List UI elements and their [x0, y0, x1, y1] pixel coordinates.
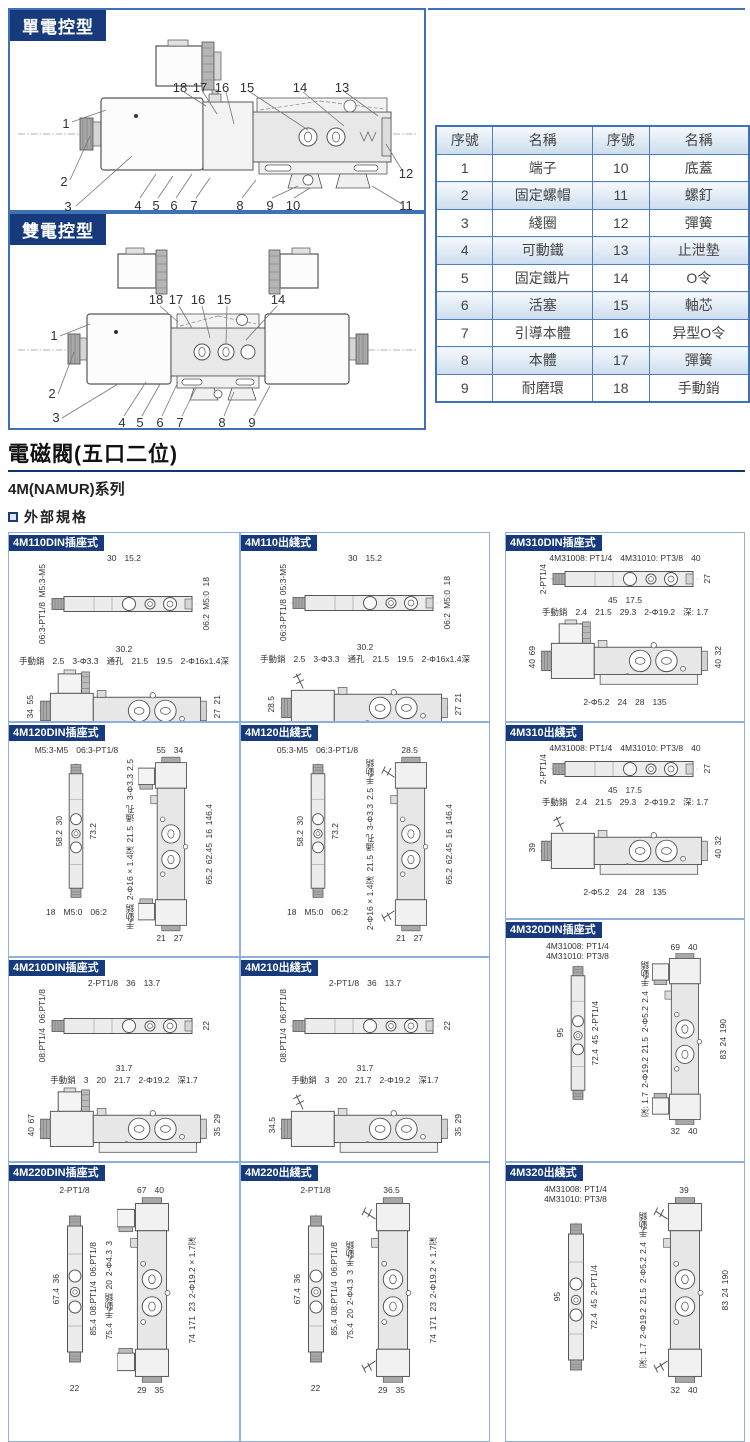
dim-label: 2-Φ16x1.4深 [181, 657, 229, 666]
callout-16: 16 [191, 292, 205, 307]
spec-panel-title: 4M110出綫式 [241, 535, 317, 551]
part-number-cell: 18 [592, 374, 649, 402]
valve-top-view-drawing [550, 568, 700, 590]
callout-18: 18 [173, 80, 187, 95]
dim-label: 135 [652, 888, 666, 897]
dim-label: 31.7 [116, 1064, 133, 1073]
dim-label: 手動銷 [542, 798, 568, 807]
spec-panel-title: 4M120出綫式 [241, 725, 318, 741]
spec-heading: 外部規格 [24, 507, 88, 527]
dim-label: 16 [445, 829, 454, 838]
dim-label: 22 [311, 1384, 320, 1393]
dimension-labels-above: 4M31008: PT1/44M31010: PT3/840 [549, 553, 700, 563]
dim-label: 2-PT1/8 [329, 979, 359, 988]
dim-label: 39 [528, 843, 537, 852]
callout-17: 17 [193, 80, 207, 95]
dim-label: 手動銷 [105, 1293, 114, 1319]
dim-label: 2.5 [126, 759, 135, 771]
dim-label: 65.2 [445, 868, 454, 885]
dim-label: 35 [155, 1386, 164, 1395]
dim-label: 手動銷 [639, 1212, 648, 1238]
dim-label: 13.7 [385, 979, 402, 988]
dim-label: 2-PT1/8 [88, 979, 118, 988]
callout-9: 9 [248, 415, 255, 428]
dimension-labels-right: 27 [703, 764, 712, 773]
callout-10: 10 [286, 198, 300, 212]
dim-label: 06:3-PT1/8 [76, 746, 118, 755]
dim-label: 67 [137, 1186, 146, 1195]
dim-label: 40 [528, 659, 537, 668]
dim-label: 67.4 [293, 1288, 302, 1305]
dim-label: 2-Φ16×1.4深 [126, 846, 135, 900]
dim-label: 4M31010: PT3/8 [620, 554, 683, 563]
dimension-labels-above: 6940 [671, 942, 698, 952]
dim-label: 35 [396, 1386, 405, 1395]
single-type-section: 單電控型 [8, 8, 426, 212]
part-name-cell: 可動鐵 [493, 237, 592, 265]
dim-label: 2.4 [575, 608, 587, 617]
callout-3: 3 [64, 199, 71, 212]
dim-label: 3 [325, 1076, 330, 1085]
page-title: 電磁閥(五口二位) [8, 438, 750, 468]
dim-label: 2-PT1/4 [539, 564, 548, 594]
dim-label: 2.4 [575, 798, 587, 807]
dim-label: 65.2 [205, 868, 214, 885]
dimension-labels-left: 06:PT1/808:PT1/4 [38, 989, 47, 1062]
dim-label: 21 [454, 693, 463, 702]
dim-label: 06:2 [90, 908, 107, 917]
dim-label: M5:0 [443, 590, 452, 609]
dimension-labels-left: 06:PT1/808:PT1/4 [279, 989, 288, 1062]
part-name-cell: 固定鐵片 [493, 264, 592, 292]
spec-heading-row: 外部規格 [8, 507, 750, 527]
dimension-labels-right: 18M5:006:2 [443, 576, 452, 629]
dim-label: 08:PT1/4 [279, 1028, 288, 1063]
cross-section-area: 單電控型 [0, 0, 750, 432]
part-name-cell: 耐磨環 [493, 374, 592, 402]
spec-panel-title: 4M310DIN插座式 [506, 535, 602, 551]
dim-label: 40 [714, 659, 723, 668]
part-number-cell: 8 [436, 347, 493, 375]
dimension-labels-below: 18M5:006:2 [287, 907, 348, 917]
dimension-labels-right: 2127 [454, 693, 463, 716]
dim-label: 深: 1.7 [683, 798, 708, 807]
dimension-labels-below: 3240 [671, 1385, 698, 1395]
part-number-cell: 9 [436, 374, 493, 402]
dim-label: 2-Φ16×1.4深 [366, 876, 375, 930]
dim-label: 17.5 [625, 786, 642, 795]
dim-label: 通孔 [348, 655, 365, 664]
dimension-labels-below: 22 [311, 1383, 320, 1393]
dim-label: 06:PT1/8 [279, 989, 288, 1024]
dim-label: 2-Φ16x1.4深 [422, 655, 470, 664]
spec-panel: 4M110出綫式 3015.2 05:3-M506:3-PT1/8 18M5:0… [240, 532, 490, 722]
dimension-labels-above: 5534 [156, 745, 183, 755]
dimension-labels-right: 27 [703, 574, 712, 583]
part-name-cell: 軸芯 [649, 292, 749, 320]
dim-label: 手動銷 [366, 759, 375, 785]
spec-panels-left-middle: 4M110DIN插座式 3015.2 M5:3-M506:3-PT1/8 18M… [8, 532, 490, 1442]
part-number-cell: 2 [436, 182, 493, 210]
dim-label: 06:PT1/8 [38, 989, 47, 1024]
dim-label: 35 [454, 1127, 463, 1136]
spec-panel: 4M120出綫式 05:3-M506:3-PT1/8 3058.2 73.2 1… [240, 722, 490, 957]
dim-label: M5:0 [202, 591, 211, 610]
valve-top-view-drawing [290, 592, 440, 614]
callout-4: 4 [118, 415, 125, 428]
part-number-cell: 5 [436, 264, 493, 292]
dim-label: 29 [378, 1386, 387, 1395]
dimension-labels-below: 18M5:006:2 [46, 907, 107, 917]
dim-label: 32 [671, 1386, 680, 1395]
dim-label: 深: 1.7 [683, 608, 708, 617]
dimension-labels-below: 2127 [156, 933, 183, 943]
dim-label: 2-PT1/4 [591, 1001, 600, 1031]
dimension-labels-right: 3240 [714, 646, 723, 669]
callout-8: 8 [218, 415, 225, 428]
dim-label: 06:2 [331, 908, 348, 917]
dim-label: 17.5 [625, 596, 642, 605]
dim-label: 19.5 [397, 655, 414, 664]
dim-label: 27 [414, 934, 423, 943]
part-number-cell: 11 [592, 182, 649, 210]
single-solenoid-cross-section-drawing: 18 17 16 15 14 13 1 2 3 4 5 6 7 8 9 10 1… [10, 36, 424, 212]
dim-label: 27 [174, 934, 183, 943]
dimension-labels-above: 4M31008: PT1/44M31010: PT3/8 [521, 1185, 631, 1203]
dim-label: 69 [528, 646, 537, 655]
dimension-labels-right: 73.2 [331, 823, 340, 840]
dim-label: 40 [691, 554, 700, 563]
part-number-cell: 17 [592, 347, 649, 375]
dim-label: 06:PT1/8 [89, 1242, 98, 1277]
dim-label: 20 [105, 1280, 114, 1289]
dimension-labels-right: 22 [443, 1021, 452, 1030]
part-number-cell: 13 [592, 237, 649, 265]
parts-table-header: 名稱 [493, 126, 592, 154]
spec-panel: 4M210DIN插座式 2-PT1/83613.7 06:PT1/808:PT1… [8, 957, 240, 1162]
spec-panels-right: 4M310DIN插座式 4M31008: PT1/44M31010: PT3/8… [505, 532, 745, 1442]
spec-panel-title: 4M220DIN插座式 [9, 1165, 105, 1181]
dim-label: 05:3-M5 [279, 564, 288, 595]
dimension-labels-above: 手動銷2.53-Φ3.3通孔21.519.52-Φ16x1.4深 [19, 657, 229, 667]
dimension-labels-below: 30.2 [357, 642, 374, 652]
dimension-labels-below: 2935 [378, 1385, 405, 1395]
spec-panel: 4M310DIN插座式 4M31008: PT1/44M31010: PT3/8… [505, 532, 745, 722]
spec-panel-title: 4M320出綫式 [506, 1165, 583, 1181]
part-number-cell: 6 [436, 292, 493, 320]
spec-panel-title: 4M310出綫式 [506, 725, 583, 741]
dim-label: M5:0 [305, 908, 324, 917]
callout-11: 11 [399, 198, 413, 212]
part-number-cell: 12 [592, 209, 649, 237]
callout-5: 5 [152, 198, 159, 212]
spec-panel: 4M220出綫式 2-PT1/8 3667.4 06:PT1/808:PT1/4… [240, 1162, 490, 1442]
dim-label: 19.5 [156, 657, 173, 666]
dim-label: 62.45 [445, 843, 454, 864]
dim-label: 2-PT1/4 [590, 1265, 599, 1295]
dim-label: 36 [367, 979, 376, 988]
valve-main-view-drawing [38, 1086, 210, 1162]
dimension-labels-right: 73.2 [89, 823, 98, 840]
dim-label: 45 [591, 1035, 600, 1044]
dim-label: 手動銷 [19, 657, 45, 666]
dimension-labels-left: 手動銷32-Φ4.32075.4 [346, 1241, 355, 1339]
dim-label: 2-Φ5.2 [583, 698, 609, 707]
valve-main-view-drawing [117, 1196, 185, 1384]
dim-label: 18 [287, 908, 296, 917]
dim-label: 2.4 [639, 1242, 648, 1254]
dim-label: 06:3-PT1/8 [279, 599, 288, 641]
dim-label: 21.5 [641, 1037, 650, 1054]
callout-14: 14 [271, 292, 285, 307]
part-number-cell: 7 [436, 319, 493, 347]
dimension-labels-below: 2-Φ5.22428135 [583, 697, 666, 707]
dimension-labels-left: 3667.4 [52, 1274, 61, 1304]
dim-label: 146.4 [205, 804, 214, 825]
dim-label: 34 [174, 746, 183, 755]
dimension-labels-left: 32-Φ4.320手動銷75.4 [105, 1241, 114, 1339]
dim-label: 30.2 [116, 645, 133, 654]
spec-panel-title: 4M210出綫式 [241, 960, 318, 976]
valve-top-view-drawing [290, 1015, 440, 1037]
dimension-labels-above: 05:3-M506:3-PT1/8 [277, 745, 358, 755]
part-name-cell: 彈簧 [649, 347, 749, 375]
dim-label: 08:PT1/4 [330, 1281, 339, 1316]
dim-label: 32 [671, 1127, 680, 1136]
dim-label: 20 [338, 1076, 347, 1085]
section-bullet-icon [8, 512, 18, 522]
dimension-labels-below: 2-Φ5.22428135 [583, 887, 666, 897]
dim-label: 29 [137, 1386, 146, 1395]
valve-main-view-drawing [652, 953, 716, 1125]
title-rule [8, 470, 745, 472]
callout-12: 12 [399, 166, 413, 181]
dim-label: 2-Φ19.2 [139, 1076, 170, 1085]
dim-label: 22 [70, 1384, 79, 1393]
dim-label: 06:3-PT1/8 [38, 602, 47, 644]
spec-panels-grid: 4M110DIN插座式 3015.2 M5:3-M506:3-PT1/8 18M… [8, 532, 745, 1442]
dimension-labels-above: 2-PT1/8 [300, 1185, 330, 1195]
part-number-cell: 1 [436, 154, 493, 182]
dim-label: 3 [105, 1241, 114, 1246]
spec-panel-title: 4M220出綫式 [241, 1165, 318, 1181]
dim-label: 21.5 [132, 657, 149, 666]
dimension-labels-above: 4M31008: PT1/44M31010: PT3/8 [523, 942, 633, 960]
catalog-page: { "page": { "sections": { "single": { "l… [0, 0, 750, 1439]
dim-label: 21.5 [595, 798, 612, 807]
dim-label: 手動銷 [50, 1076, 76, 1085]
dim-label: 13.7 [144, 979, 161, 988]
valve-top-view-drawing [550, 758, 700, 780]
callout-18: 18 [149, 292, 163, 307]
dim-label: 40 [688, 943, 697, 952]
dimension-labels-right: 1902483 [719, 1019, 728, 1060]
dim-label: 2-Φ4.3 [105, 1250, 114, 1276]
dim-label: 45 [608, 596, 617, 605]
dim-label: 75.4 [346, 1323, 355, 1340]
dimension-labels-right: 146.41662.4565.2 [205, 804, 214, 885]
dimension-labels-right: 18M5:006:2 [202, 577, 211, 630]
dim-label: 36 [52, 1274, 61, 1283]
spec-panel: 4M210出綫式 2-PT1/83613.7 06:PT1/808:PT1/4 … [240, 957, 490, 1162]
dim-label: 29 [454, 1114, 463, 1123]
dim-label: 23 [429, 1302, 438, 1311]
dim-label: 27 [454, 706, 463, 715]
dim-label: 4M31010: PT3/8 [546, 952, 609, 961]
dimension-labels-above: 28.5 [401, 745, 418, 755]
valve-top-view-drawing [568, 961, 588, 1105]
dim-label: 29.3 [620, 798, 637, 807]
dim-label: 24 [719, 1037, 728, 1046]
spec-panel: 4M320出綫式 4M31008: PT1/44M31010: PT3/8 95… [505, 1162, 745, 1442]
dim-label: 22 [443, 1021, 452, 1030]
dimension-labels-left: 34.5 [268, 1117, 277, 1134]
valve-top-view-drawing [64, 1196, 86, 1382]
dim-label: 73.2 [331, 823, 340, 840]
valve-main-view-drawing [539, 808, 711, 886]
callout-13: 13 [335, 80, 349, 95]
valve-main-view-drawing [378, 756, 442, 932]
dim-label: 83 [721, 1301, 730, 1310]
dim-label: 22 [202, 1021, 211, 1030]
callout-3: 3 [52, 410, 59, 425]
dimension-labels-left: 95 [556, 1028, 565, 1037]
part-name-cell: 端子 [493, 154, 592, 182]
dimension-labels-left: 2-PT1/4 [539, 564, 548, 594]
dimension-labels-above: M5:3-M506:3-PT1/8 [35, 745, 119, 755]
dim-label: 30 [107, 554, 116, 563]
dim-label: 21 [156, 934, 165, 943]
spec-panel-title: 4M110DIN插座式 [9, 535, 104, 551]
dim-label: 4M31008: PT1/4 [549, 554, 612, 563]
dimension-labels-left: 手動銷2.42-Φ5.221.52-Φ19.2深: 1.7 [639, 1212, 648, 1368]
callout-14: 14 [293, 80, 307, 95]
dim-label: 2-Φ19.2 [641, 1057, 650, 1088]
valve-main-view-drawing [358, 1196, 426, 1384]
dim-label: 2-Φ5.2 [641, 1006, 650, 1032]
callout-5: 5 [136, 415, 143, 428]
dimension-labels-above: 36.5 [383, 1185, 400, 1195]
dimension-labels-below: 3240 [671, 1126, 698, 1136]
dim-label: 35 [213, 1127, 222, 1136]
dim-label: 67.4 [52, 1288, 61, 1305]
valve-main-view-drawing [650, 1196, 718, 1384]
dim-label: 74 [188, 1334, 197, 1343]
dim-label: 2-Φ19.2 [644, 608, 675, 617]
callout-4: 4 [134, 198, 141, 212]
callout-15: 15 [217, 292, 231, 307]
dim-label: 74 [429, 1334, 438, 1343]
dim-label: 21.7 [355, 1076, 372, 1085]
dimension-labels-left: 6740 [27, 1114, 36, 1137]
dimension-labels-left: 3058.2 [296, 816, 305, 846]
dimension-labels-left: 手動銷2.42-Φ5.221.52-Φ19.2深: 1.7 [641, 961, 650, 1117]
dim-label: 72.4 [591, 1049, 600, 1066]
spec-panel: 4M220DIN插座式 2-PT1/8 3667.4 06:PT1/808:PT… [8, 1162, 240, 1442]
dim-label: 27 [703, 574, 712, 583]
dim-label: 34.5 [268, 1117, 277, 1134]
dimension-labels-above: 手動銷32021.72-Φ19.2深1.7 [291, 1075, 438, 1085]
dim-label: 深: 1.7 [641, 1092, 650, 1117]
dimension-labels-above: 2-PT1/83613.7 [329, 978, 401, 988]
dim-label: 深: 1.7 [639, 1343, 648, 1368]
dim-label: 72.4 [590, 1313, 599, 1330]
dim-label: 40 [691, 744, 700, 753]
dim-label: 31.7 [357, 1064, 374, 1073]
dim-label: 171 [429, 1316, 438, 1330]
dimension-labels-left: 95 [553, 1292, 562, 1301]
dim-label: 40 [688, 1127, 697, 1136]
part-name-cell: 引導本體 [493, 319, 592, 347]
dimension-labels-below: 30.2 [116, 645, 133, 655]
valve-top-view-drawing [308, 756, 328, 906]
part-name-cell: 底蓋 [649, 154, 749, 182]
dim-label: 55 [156, 746, 165, 755]
dimension-labels-above: 3015.2 [107, 553, 141, 563]
dimension-labels-left: 39 [528, 843, 537, 852]
dim-label: 通孔 [107, 657, 124, 666]
dim-label: 135 [652, 698, 666, 707]
dimension-labels-above: 2-PT1/83613.7 [88, 978, 160, 988]
dim-label: 2.4 [641, 991, 650, 1003]
dim-label: 39 [679, 1186, 688, 1195]
callout-2: 2 [60, 174, 67, 189]
callout-8: 8 [236, 198, 243, 212]
dimension-labels-right: 06:PT1/808:PT1/485.4 [89, 1242, 98, 1336]
dim-label: 4M31008: PT1/4 [546, 942, 609, 951]
callout-7: 7 [176, 415, 183, 428]
dim-label: 2.5 [366, 788, 375, 800]
dim-label: 06:3-PT1/8 [316, 746, 358, 755]
dimension-labels-left: 2-PT1/4 [539, 754, 548, 784]
dim-label: 手動銷 [260, 655, 286, 664]
dim-label: 2.5 [53, 657, 65, 666]
dim-label: 18 [202, 577, 211, 586]
dimension-labels-left: 6940 [528, 646, 537, 669]
dim-label: 4M31008: PT1/4 [544, 1185, 607, 1194]
dim-label: 18 [443, 576, 452, 585]
valve-top-view-drawing [49, 1015, 199, 1037]
dim-label: 21.5 [639, 1288, 648, 1305]
dim-label: 3-Φ3.3 [72, 657, 98, 666]
dim-label: 15.2 [365, 554, 382, 563]
dim-label: 34 [26, 709, 35, 718]
part-name-cell: 彈簧 [649, 209, 749, 237]
dim-label: 21.7 [114, 1076, 131, 1085]
dim-label: M5:3-M5 [35, 746, 69, 755]
dim-label: 24 [721, 1288, 730, 1297]
part-name-cell: 手動銷 [649, 374, 749, 402]
dim-label: 4M31010: PT3/8 [544, 1195, 607, 1204]
dim-label: 190 [721, 1270, 730, 1284]
valve-main-view-drawing [38, 668, 210, 722]
callout-16: 16 [215, 80, 229, 95]
dimension-labels-right: 2-PT1/44572.4 [591, 1001, 600, 1065]
dim-label: 45 [590, 1299, 599, 1308]
parts-table: 序號名稱序號名稱1端子10底蓋2固定螺帽11螺釘3綫圈12彈簧4可動鐵13止泄墊… [435, 125, 750, 403]
part-name-cell: 綫圈 [493, 209, 592, 237]
dim-label: 21.5 [126, 826, 135, 843]
dim-label: 30.2 [357, 643, 374, 652]
dim-label: 32 [714, 646, 723, 655]
dimension-labels-below: 4517.5 [608, 595, 642, 605]
dim-label: 3-Φ3.3 [313, 655, 339, 664]
dim-label: 62.45 [205, 843, 214, 864]
part-name-cell: 止泄墊 [649, 237, 749, 265]
dim-label: M5:3-M5 [38, 564, 47, 598]
part-name-cell: 异型O令 [649, 319, 749, 347]
dimension-labels-above: 6740 [137, 1185, 164, 1195]
